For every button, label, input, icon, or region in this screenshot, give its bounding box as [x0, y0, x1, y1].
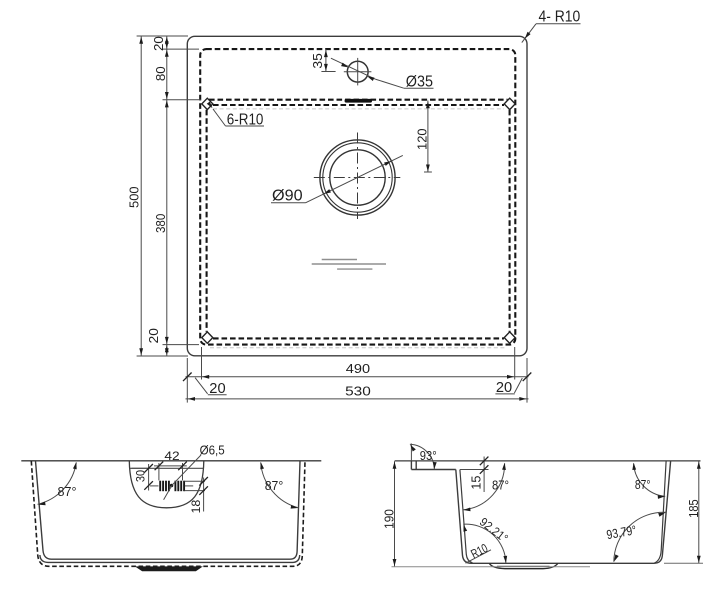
- svg-text:Ø6,5: Ø6,5: [200, 442, 225, 457]
- svg-text:Ø35: Ø35: [406, 74, 433, 91]
- svg-text:80: 80: [153, 66, 168, 81]
- svg-text:35: 35: [310, 53, 325, 69]
- svg-text:87°: 87°: [265, 478, 284, 493]
- svg-text:87°: 87°: [492, 477, 509, 492]
- svg-text:93°: 93°: [420, 448, 437, 463]
- svg-text:185: 185: [686, 499, 701, 517]
- svg-text:18: 18: [189, 499, 203, 513]
- svg-text:20: 20: [146, 328, 161, 343]
- svg-text:30: 30: [134, 470, 148, 482]
- svg-text:20: 20: [496, 380, 512, 396]
- svg-text:87°: 87°: [58, 484, 77, 499]
- svg-text:87°: 87°: [635, 477, 651, 492]
- svg-text:20: 20: [151, 36, 166, 51]
- svg-text:190: 190: [382, 509, 397, 529]
- svg-text:15: 15: [469, 476, 484, 490]
- svg-text:20: 20: [209, 381, 225, 397]
- svg-text:490: 490: [346, 361, 370, 376]
- svg-text:530: 530: [345, 383, 371, 398]
- svg-text:500: 500: [127, 186, 142, 208]
- svg-text:120: 120: [414, 128, 429, 150]
- svg-text:4- R10: 4- R10: [539, 8, 581, 25]
- svg-text:42: 42: [164, 451, 179, 463]
- svg-text:Ø90: Ø90: [272, 188, 303, 205]
- svg-text:380: 380: [153, 214, 168, 233]
